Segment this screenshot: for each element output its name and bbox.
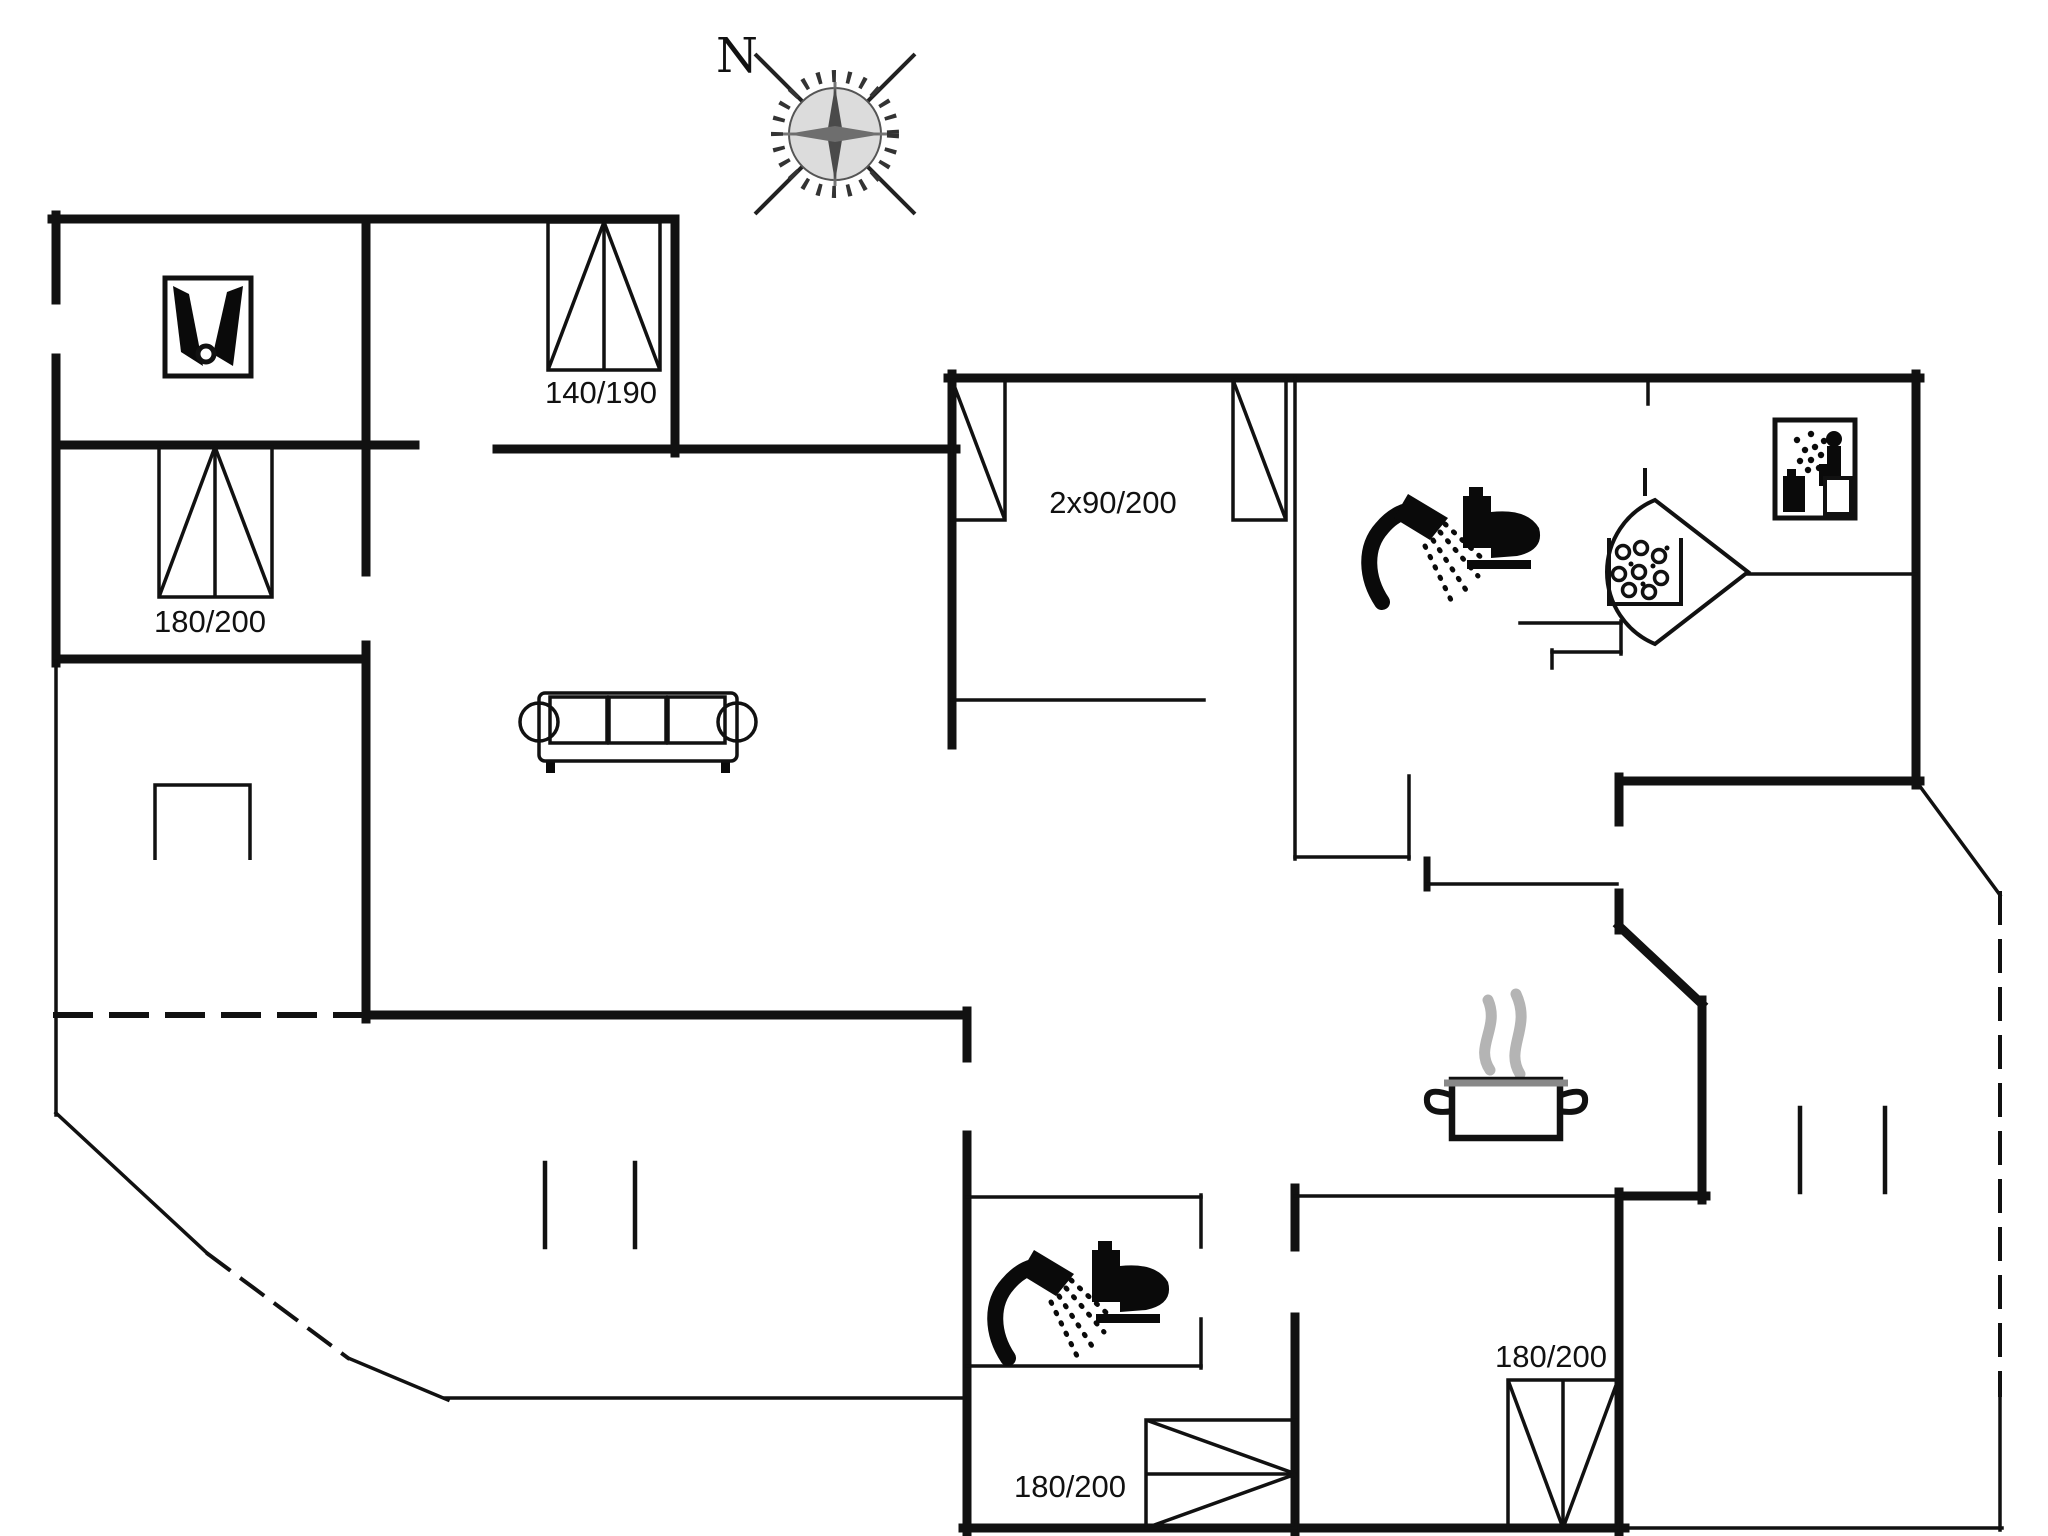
sofa-icon — [520, 693, 756, 773]
bed-size-label: 2x90/200 — [1049, 485, 1177, 520]
wardrobe-icon — [165, 278, 251, 376]
bed-size-label: 140/190 — [545, 375, 657, 410]
bed-size-label: 180/200 — [1014, 1469, 1126, 1504]
toilet-icon — [1463, 487, 1540, 569]
dashed-boundary — [208, 1254, 348, 1358]
double-bed-icon-180x200-upper-left — [159, 447, 272, 597]
wall-segment — [348, 1358, 448, 1400]
bed-size-label: 180/200 — [1495, 1339, 1607, 1374]
wall-segment — [56, 1113, 208, 1254]
floor-plan-drawing: N — [0, 0, 2048, 1536]
north-label: N — [716, 28, 758, 84]
walls — [52, 215, 2002, 1532]
double-bed-icon-140x190 — [548, 222, 660, 370]
cooking-pot-icon — [1427, 994, 1585, 1138]
fireplace-icon — [155, 785, 250, 860]
bed-size-label: 180/200 — [154, 604, 266, 639]
double-bed-icon-180x200-lower-middle — [1146, 1420, 1296, 1528]
double-bed-icon-180x200-lower-right — [1508, 1380, 1618, 1528]
floor-plan-page: N — [0, 0, 2048, 1536]
single-bed-icon-right — [1233, 380, 1286, 520]
compass-rose-icon — [755, 54, 915, 214]
sauna-icon — [1775, 420, 1855, 518]
steam — [1485, 1000, 1492, 1070]
sauna-stove-icon — [1607, 468, 1748, 644]
wall-segment — [1619, 926, 1702, 1004]
wall-segment — [1916, 781, 2000, 895]
steam — [1515, 994, 1521, 1074]
